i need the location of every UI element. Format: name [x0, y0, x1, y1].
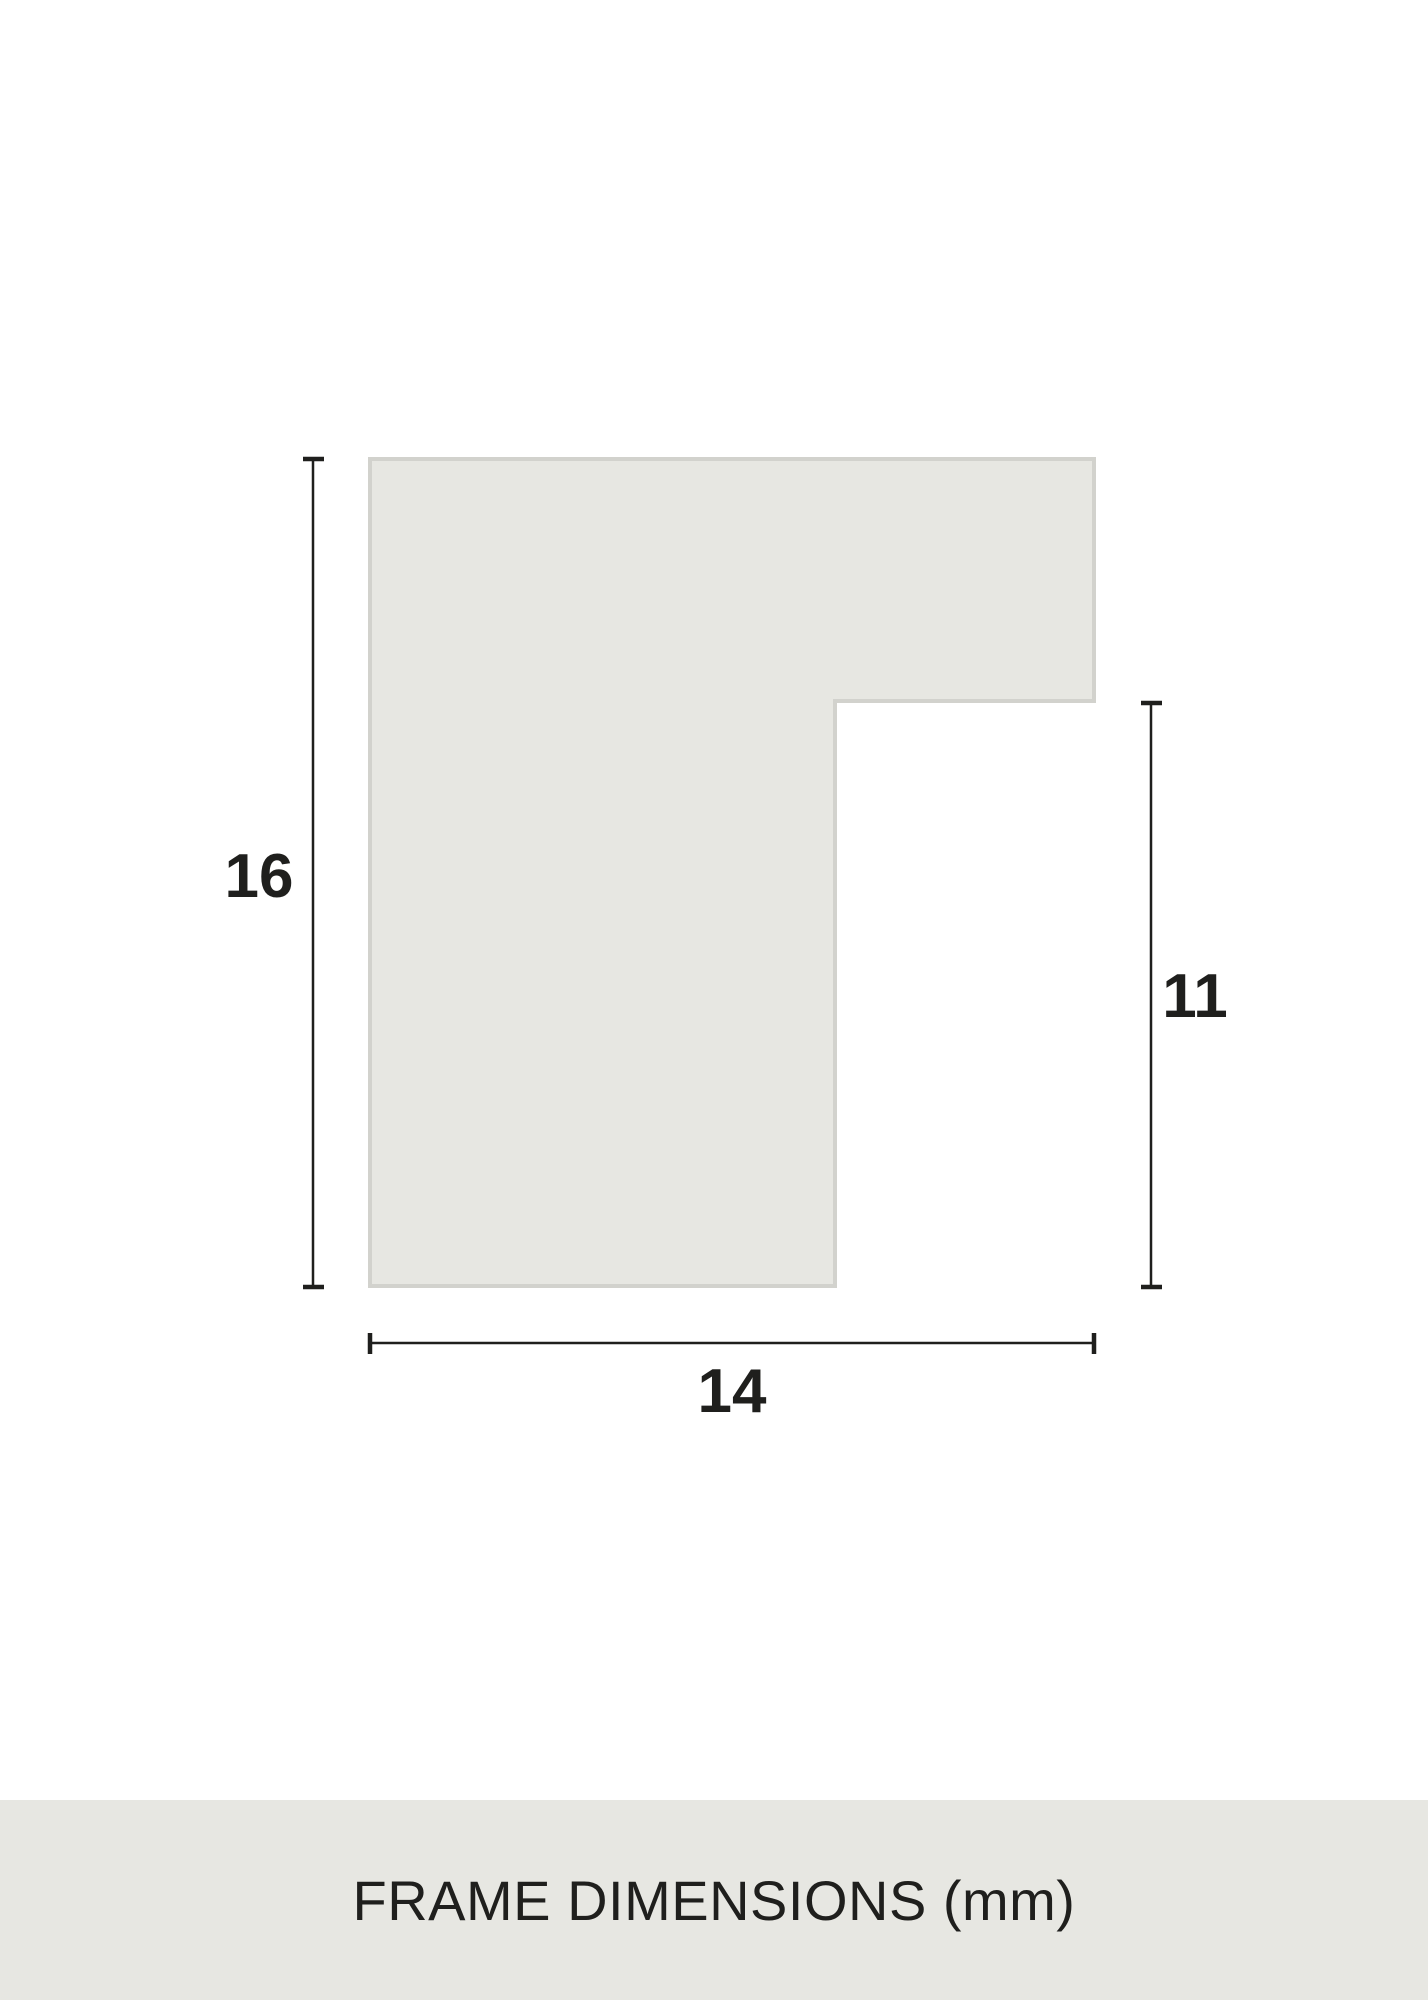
dimension-right-label: 11 — [1162, 962, 1228, 1031]
footer-band: FRAME DIMENSIONS (mm) — [0, 1800, 1428, 2000]
frame-profile-diagram: 16 11 14 — [0, 0, 1428, 1800]
diagram-caption: FRAME DIMENSIONS (mm) — [353, 1868, 1076, 1933]
dimension-left-height: 16 — [225, 459, 324, 1287]
dimension-left-label: 16 — [225, 842, 294, 911]
frame-dimensions-page: 16 11 14 FRAME DIMENSIONS (mm) — [0, 0, 1428, 2000]
dimension-right-height: 11 — [1141, 703, 1228, 1287]
dimension-bottom-label: 14 — [698, 1357, 767, 1426]
dimension-bottom-width: 14 — [370, 1333, 1094, 1426]
frame-cross-section-shape — [370, 459, 1094, 1286]
